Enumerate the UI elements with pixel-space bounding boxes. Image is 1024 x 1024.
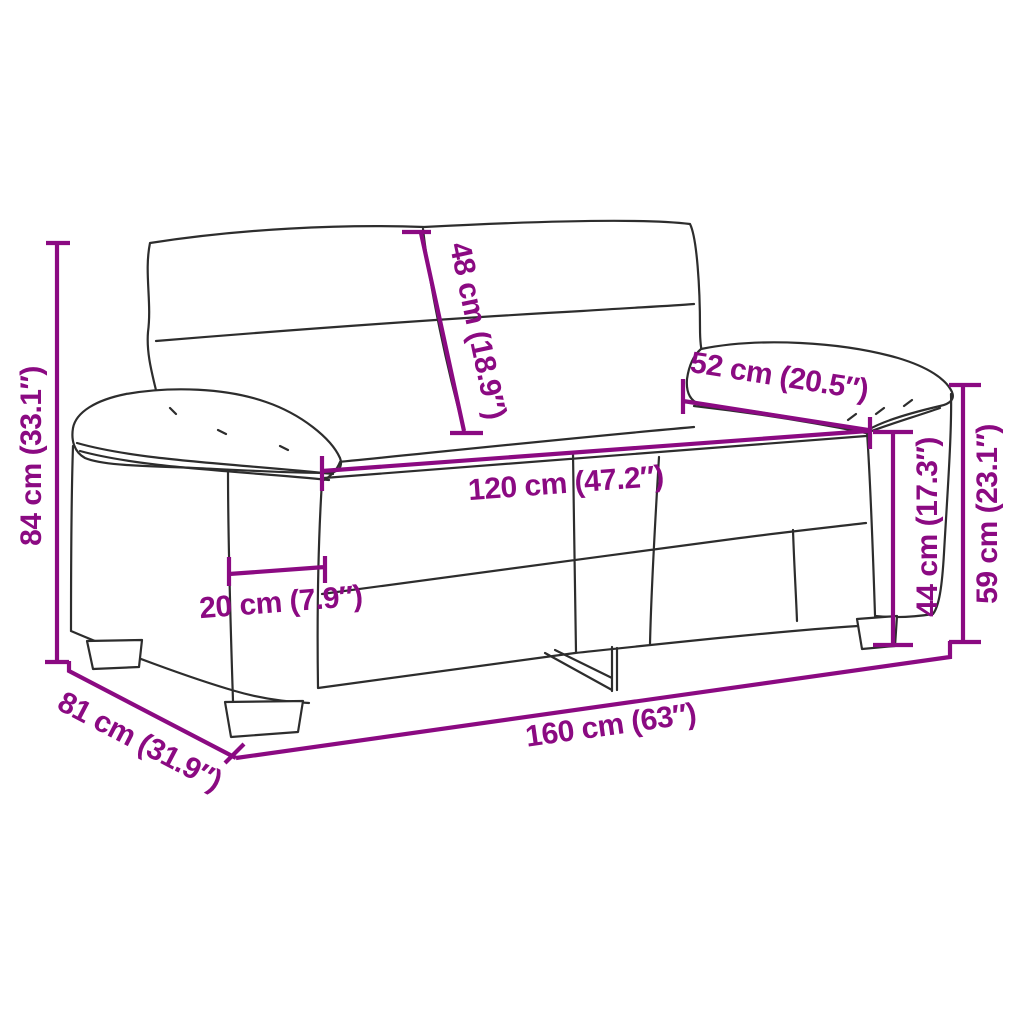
dimension-backrest-height: 48 cm (18.9″) [402, 232, 512, 433]
foot-center [545, 647, 617, 691]
left-armrest-pad [72, 389, 341, 473]
dimension-line-84 [45, 243, 70, 662]
sofa-dimension-diagram: 84 cm (33.1″) 48 cm (18.9″) 52 cm (20.5″… [0, 0, 1024, 1024]
diagram-svg: 84 cm (33.1″) 48 cm (18.9″) 52 cm (20.5″… [0, 0, 1024, 1024]
dimension-seat-width: 120 cm (47.2″) [322, 417, 870, 507]
foot-front-left [225, 701, 303, 737]
dimension-line-20 [229, 556, 325, 586]
foot-back-left [87, 640, 142, 669]
dimension-label-48: 48 cm (18.9″) [443, 239, 513, 422]
dimension-overall-depth: 81 cm (31.9″) [52, 661, 244, 798]
dimension-overall-height: 84 cm (33.1″) [15, 243, 70, 662]
dimension-armrest-height: 59 cm (23.1″) [949, 385, 1004, 642]
dimension-annotations: 84 cm (33.1″) 48 cm (18.9″) 52 cm (20.5″… [15, 232, 1004, 798]
dimension-overall-width: 160 cm (63″) [236, 641, 950, 758]
dimension-label-59: 59 cm (23.1″) [971, 424, 1004, 604]
dimension-label-44: 44 cm (17.3″) [911, 437, 944, 617]
dimension-line-44 [873, 432, 913, 645]
dimension-label-20: 20 cm (7.9″) [198, 580, 364, 626]
backrest-mid-seam [156, 304, 694, 341]
dimension-label-120: 120 cm (47.2″) [467, 460, 665, 507]
dimension-seat-height: 44 cm (17.3″) [873, 432, 944, 645]
dimension-armrest-width: 20 cm (7.9″) [198, 556, 364, 625]
dimension-label-84: 84 cm (33.1″) [15, 366, 48, 546]
